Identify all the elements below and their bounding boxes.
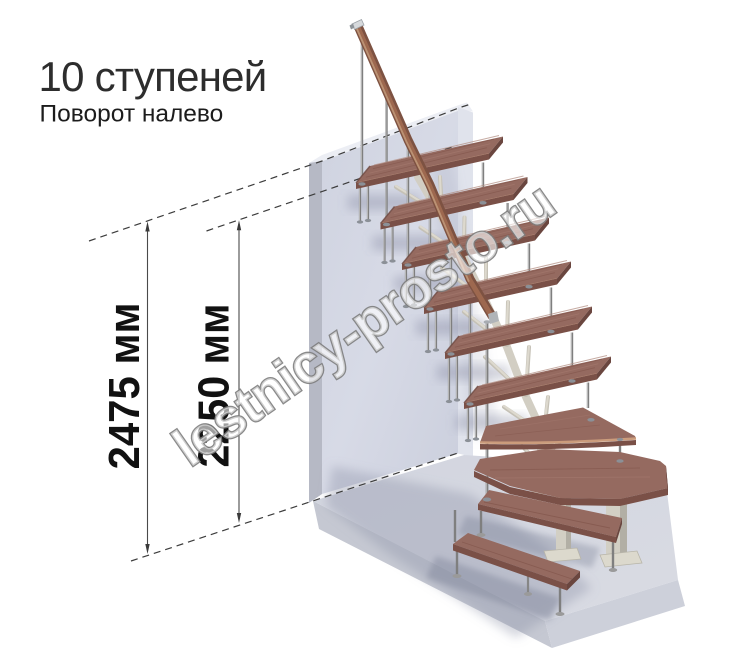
- svg-text:Поворот налево: Поворот налево: [40, 101, 224, 128]
- svg-text:10 ступеней: 10 ступеней: [39, 53, 267, 100]
- svg-text:2475 мм: 2475 мм: [100, 303, 149, 470]
